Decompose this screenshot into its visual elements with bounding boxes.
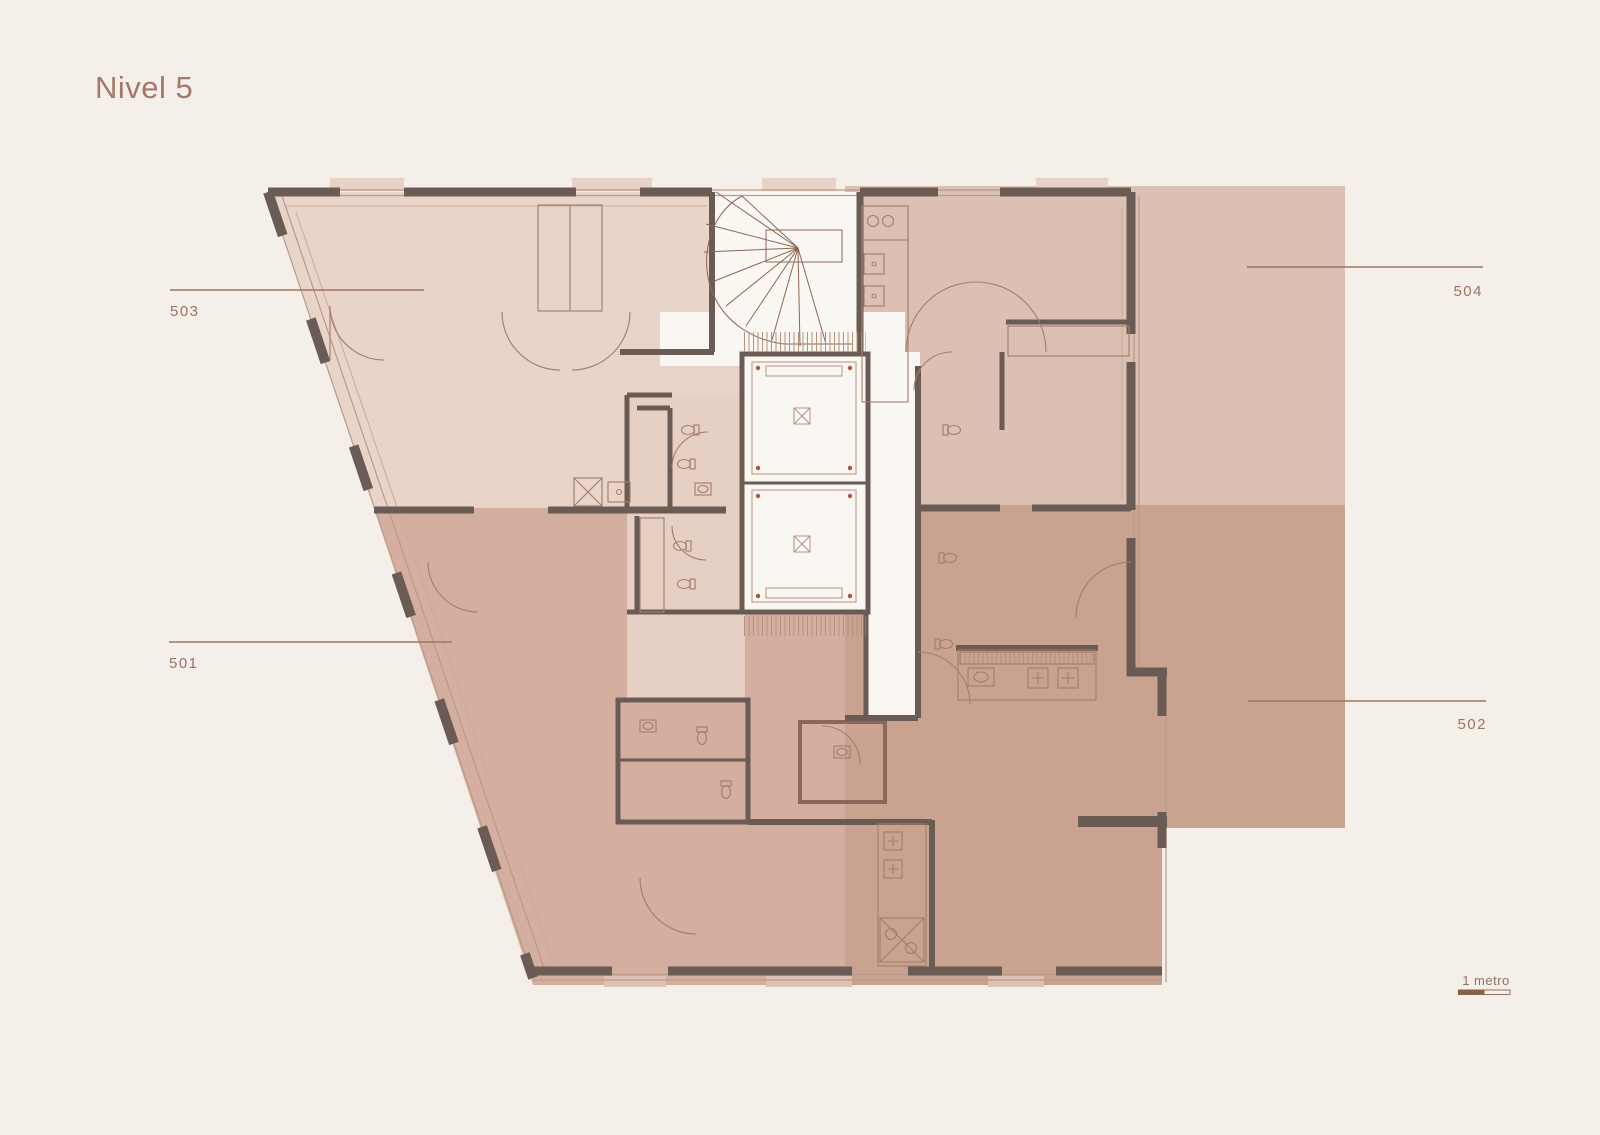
unit-label-501[interactable]: 501: [169, 655, 199, 672]
unit-label-504[interactable]: 504: [1453, 283, 1483, 300]
unit-label-503[interactable]: 503: [170, 303, 200, 320]
scale-bar-filled: [1458, 990, 1484, 996]
scale-label: 1 metro: [1462, 973, 1510, 988]
floor-plan-page: 503 501 504 502 Nivel 5 1 metro: [0, 0, 1600, 1135]
floor-plan-canvas: 503 501 504 502 Nivel 5 1 metro: [0, 0, 1600, 1135]
scale-indicator: 1 metro: [1458, 973, 1510, 995]
page-title: Nivel 5: [95, 70, 193, 105]
scale-bar-empty: [1484, 990, 1510, 995]
unit-label-502[interactable]: 502: [1457, 716, 1487, 733]
